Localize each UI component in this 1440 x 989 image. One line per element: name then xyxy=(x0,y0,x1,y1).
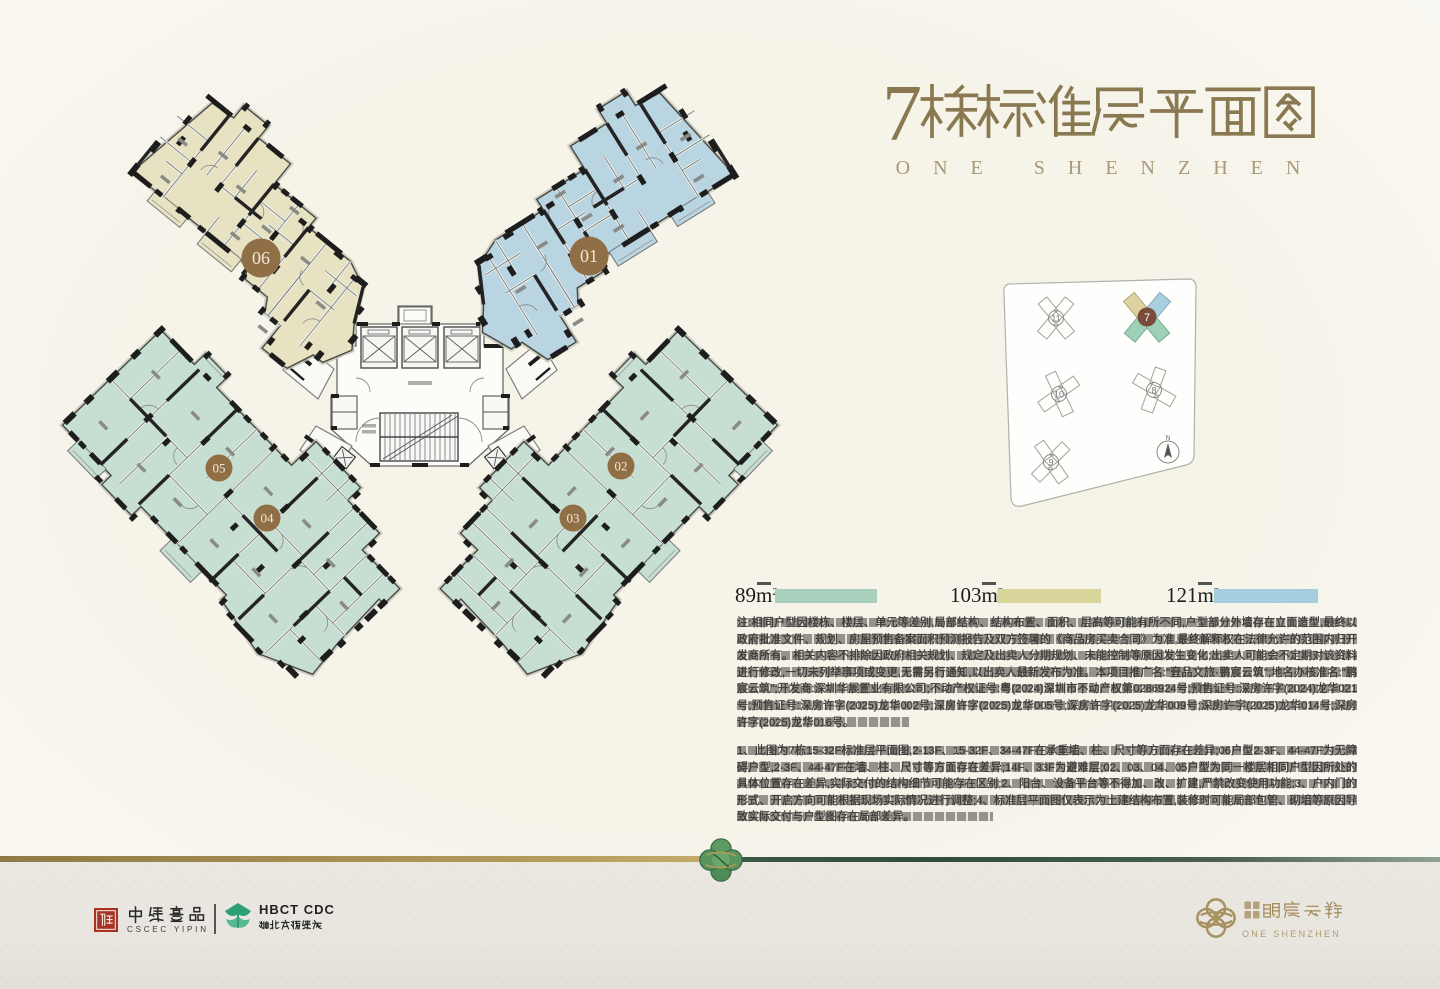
svg-text:02: 02 xyxy=(615,458,628,473)
svg-text:N: N xyxy=(1165,435,1170,442)
svg-text:01: 01 xyxy=(580,246,598,266)
svg-text:05: 05 xyxy=(213,460,226,475)
svg-text:11: 11 xyxy=(1051,314,1060,324)
svg-text:10: 10 xyxy=(1054,390,1064,400)
svg-text:8: 8 xyxy=(1151,386,1156,396)
svg-text:03: 03 xyxy=(567,510,580,525)
svg-text:04: 04 xyxy=(261,510,275,525)
svg-text:06: 06 xyxy=(252,248,270,268)
svg-text:7: 7 xyxy=(1144,312,1150,324)
svg-text:9: 9 xyxy=(1048,458,1053,468)
